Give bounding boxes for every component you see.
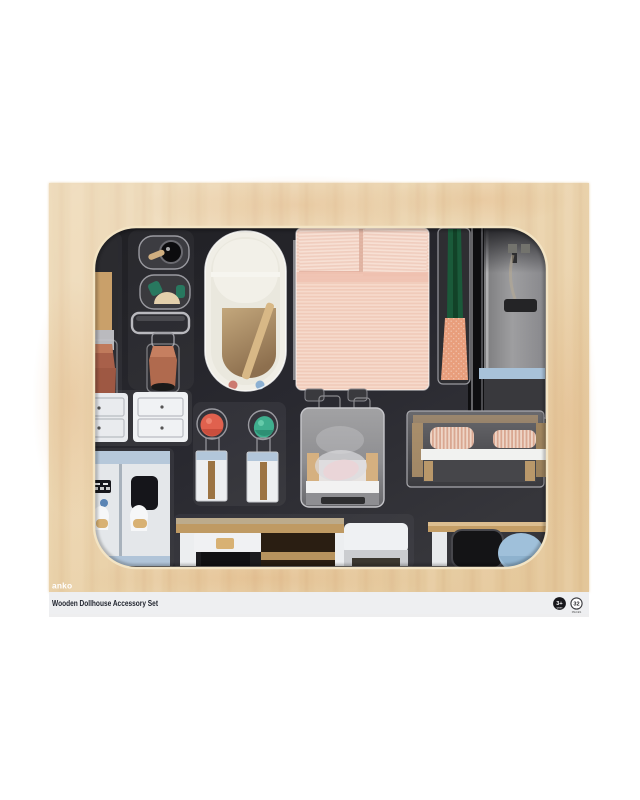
svg-text:PIECES: PIECES (572, 610, 582, 614)
svg-text:anko: anko (52, 581, 72, 591)
svg-text:Wooden Dollhouse Accessory Set: Wooden Dollhouse Accessory Set (52, 598, 158, 608)
svg-text:years: years (557, 607, 564, 610)
svg-text:32: 32 (573, 602, 579, 608)
